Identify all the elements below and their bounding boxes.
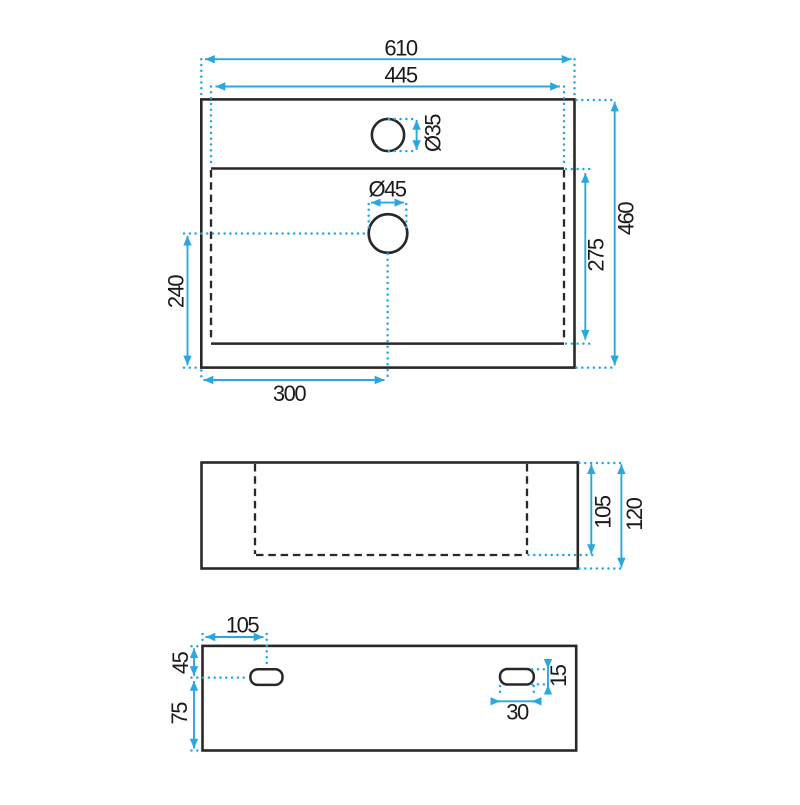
svg-text:15: 15: [546, 664, 571, 687]
svg-text:240: 240: [163, 275, 188, 308]
svg-text:460: 460: [613, 202, 638, 235]
svg-text:Ø45: Ø45: [368, 176, 406, 201]
svg-text:75: 75: [167, 702, 192, 725]
svg-text:45: 45: [168, 651, 193, 674]
svg-text:610: 610: [384, 36, 417, 61]
svg-text:275: 275: [584, 238, 609, 271]
svg-text:105: 105: [591, 495, 616, 528]
svg-text:300: 300: [273, 381, 306, 406]
svg-text:105: 105: [226, 613, 259, 638]
svg-text:445: 445: [384, 63, 417, 88]
svg-text:Ø35: Ø35: [420, 114, 445, 152]
svg-text:30: 30: [506, 700, 529, 725]
svg-text:120: 120: [622, 497, 647, 530]
